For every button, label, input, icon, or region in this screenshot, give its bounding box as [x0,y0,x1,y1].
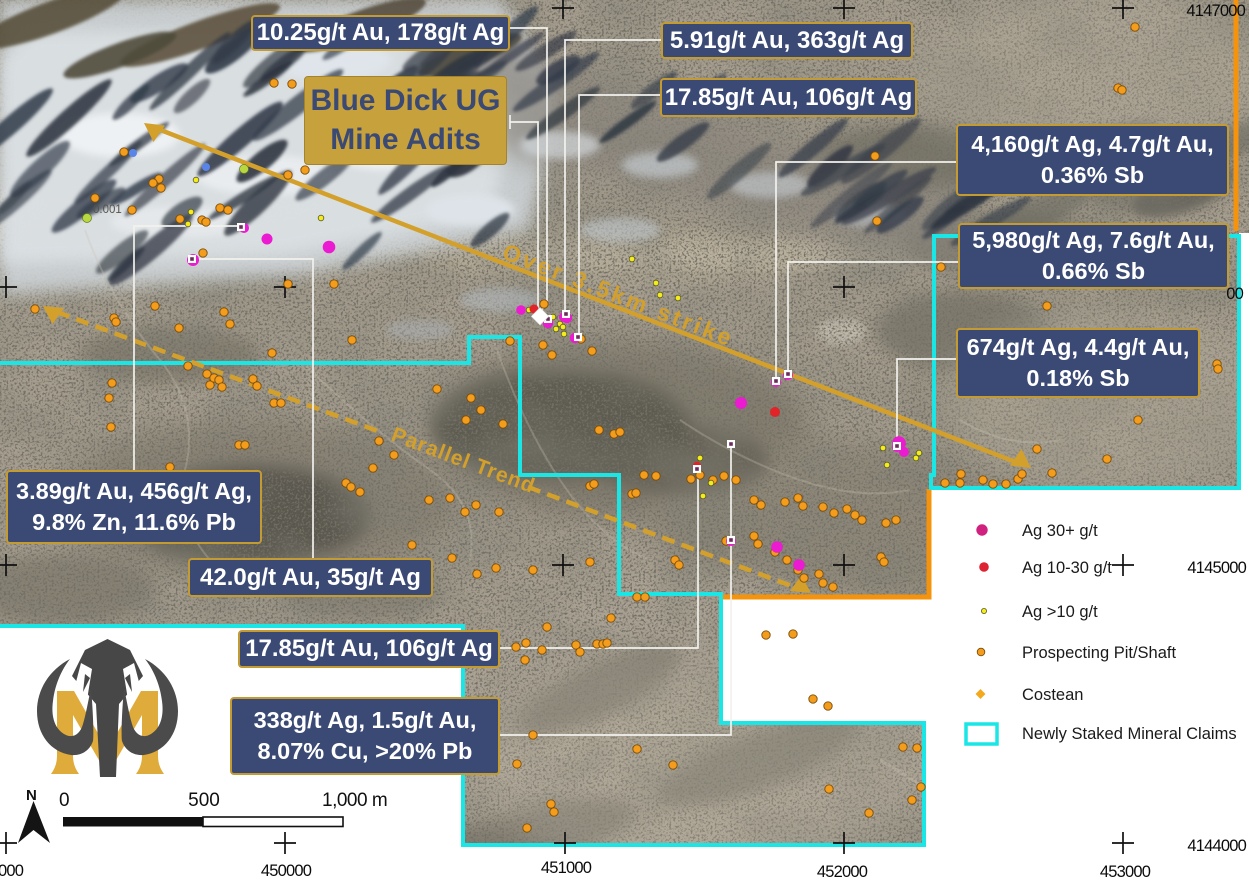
svg-text:453000: 453000 [1100,863,1151,881]
svg-text:500: 500 [188,790,220,811]
svg-text:451000: 451000 [541,859,592,877]
svg-text:Ag 30+ g/t: Ag 30+ g/t [1022,522,1098,540]
svg-text:4144000: 4144000 [1187,837,1246,855]
svg-text:N: N [26,787,37,804]
svg-text:Prospecting Pit/Shaft: Prospecting Pit/Shaft [1022,644,1176,662]
svg-text:00: 00 [1226,285,1243,303]
svg-text:Newly Staked Mineral Claims: Newly Staked Mineral Claims [1022,725,1237,743]
svg-text:4147000: 4147000 [1186,2,1245,20]
svg-text:449000: 449000 [0,862,24,880]
svg-text:0.001: 0.001 [93,204,122,216]
svg-text:4145000: 4145000 [1187,559,1246,577]
svg-text:1,000 m: 1,000 m [322,790,387,811]
svg-text:450000: 450000 [261,862,312,880]
svg-text:Ag 10-30 g/t: Ag 10-30 g/t [1022,559,1112,577]
svg-text:452000: 452000 [817,863,868,881]
svg-text:Ag >10 g/t: Ag >10 g/t [1022,603,1098,621]
svg-text:Costean: Costean [1022,686,1083,704]
svg-text:0: 0 [59,790,70,811]
